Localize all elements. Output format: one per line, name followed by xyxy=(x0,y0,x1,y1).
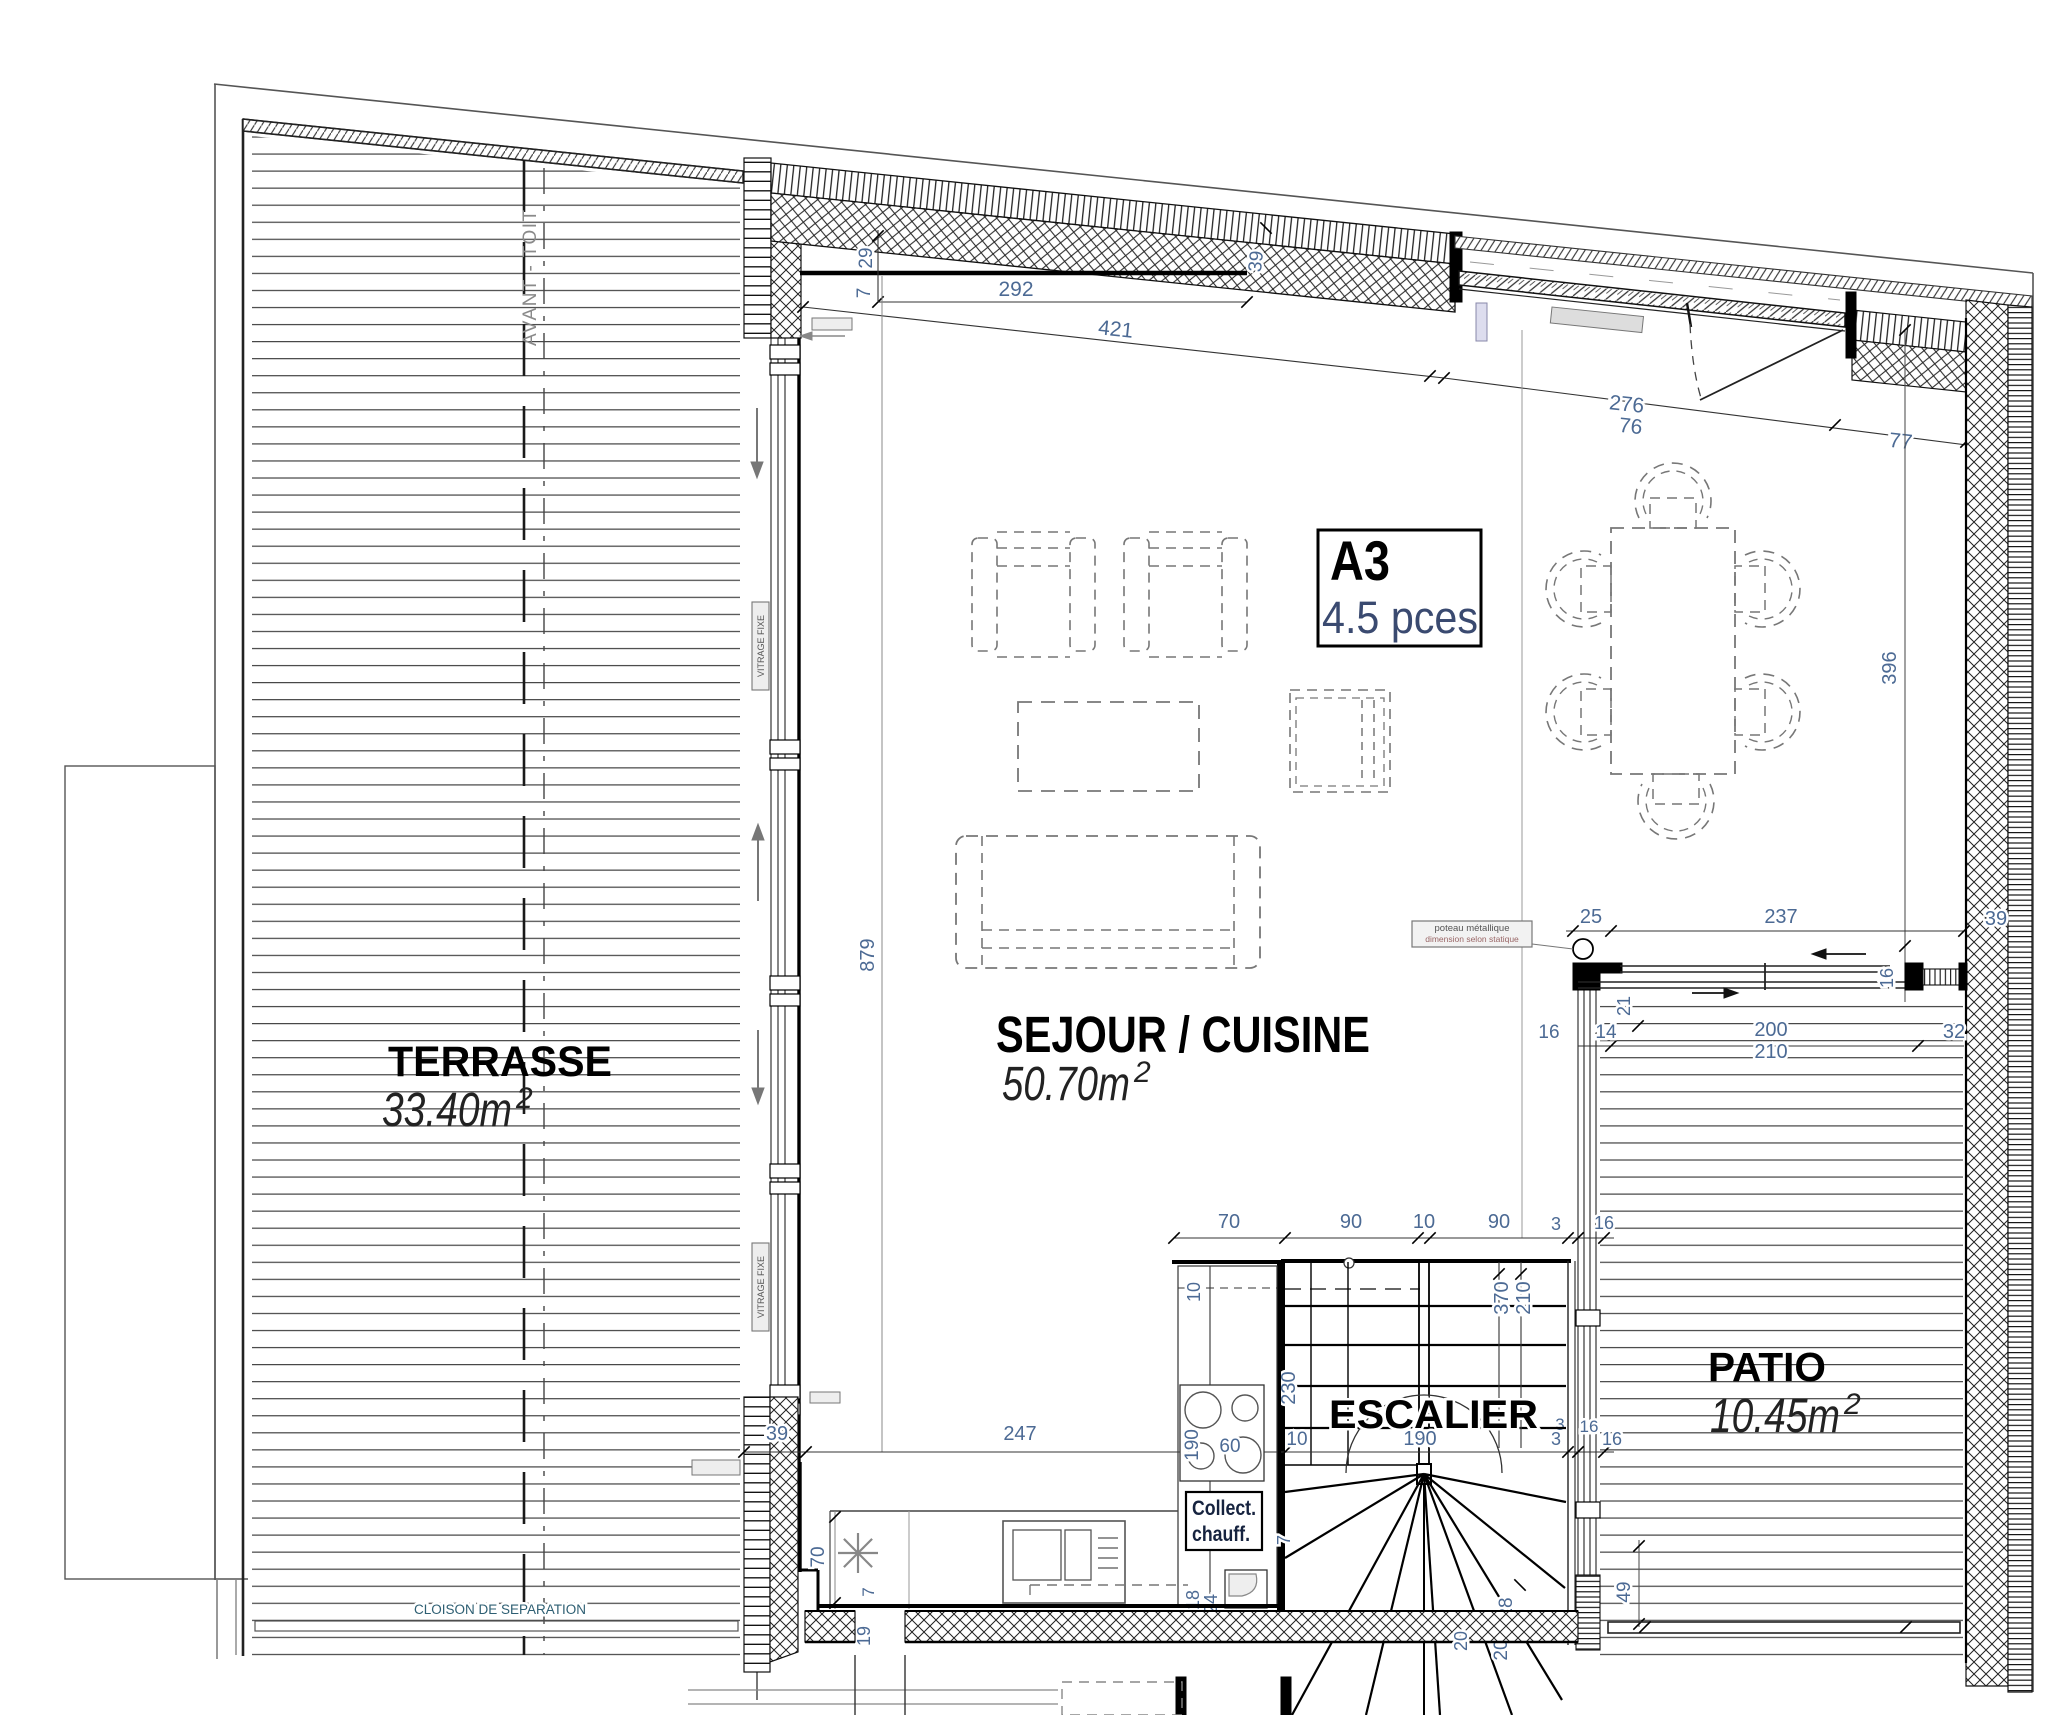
svg-text:16: 16 xyxy=(1538,1022,1559,1043)
svg-text:16: 16 xyxy=(1602,1429,1622,1449)
svg-text:421: 421 xyxy=(1097,316,1134,343)
svg-text:14: 14 xyxy=(1595,1022,1617,1043)
svg-text:10: 10 xyxy=(1184,1282,1204,1302)
svg-text:25: 25 xyxy=(1580,906,1602,928)
svg-text:50.70m: 50.70m xyxy=(1002,1058,1130,1111)
svg-text:10.45m: 10.45m xyxy=(1710,1390,1840,1443)
svg-text:190: 190 xyxy=(1403,1428,1436,1450)
svg-text:76: 76 xyxy=(1618,414,1644,439)
svg-text:2: 2 xyxy=(1843,1388,1861,1421)
svg-text:16: 16 xyxy=(1594,1213,1614,1233)
svg-text:PATIO: PATIO xyxy=(1708,1344,1826,1390)
svg-text:A3: A3 xyxy=(1330,529,1390,592)
svg-text:210: 210 xyxy=(1513,1281,1535,1314)
svg-text:292: 292 xyxy=(998,278,1033,301)
svg-text:230: 230 xyxy=(1278,1371,1300,1404)
svg-text:190: 190 xyxy=(1182,1429,1203,1461)
svg-text:poteau métallique: poteau métallique xyxy=(1435,923,1510,934)
svg-text:Collect.: Collect. xyxy=(1192,1497,1256,1520)
svg-text:70: 70 xyxy=(1218,1211,1240,1233)
svg-text:4.5 pces: 4.5 pces xyxy=(1322,592,1478,643)
svg-text:33.40m: 33.40m xyxy=(382,1084,512,1137)
svg-text:90: 90 xyxy=(1488,1211,1510,1233)
svg-text:879: 879 xyxy=(857,938,879,971)
svg-text:3: 3 xyxy=(1551,1429,1561,1449)
svg-text:3: 3 xyxy=(1551,1214,1561,1234)
svg-text:2: 2 xyxy=(515,1082,533,1115)
svg-text:21: 21 xyxy=(1614,996,1634,1016)
svg-text:10: 10 xyxy=(1413,1211,1435,1233)
svg-text:7: 7 xyxy=(854,288,875,299)
svg-text:39: 39 xyxy=(1245,250,1268,273)
svg-text:29: 29 xyxy=(856,247,877,268)
svg-text:19: 19 xyxy=(854,1626,874,1646)
svg-text:247: 247 xyxy=(1003,1423,1036,1445)
svg-text:77: 77 xyxy=(1888,429,1914,454)
svg-text:39: 39 xyxy=(1985,908,2007,930)
svg-text:237: 237 xyxy=(1764,906,1797,928)
svg-text:370: 370 xyxy=(1491,1281,1513,1314)
svg-text:10: 10 xyxy=(1286,1429,1307,1450)
svg-text:VITRAGE FIXE: VITRAGE FIXE xyxy=(756,1256,766,1318)
svg-text:dimension selon statique: dimension selon statique xyxy=(1425,934,1519,944)
svg-text:SEJOUR / CUISINE: SEJOUR / CUISINE xyxy=(996,1006,1370,1063)
svg-text:7: 7 xyxy=(1274,1535,1294,1545)
svg-text:7: 7 xyxy=(859,1587,878,1596)
svg-text:20: 20 xyxy=(1451,1631,1471,1651)
svg-text:70: 70 xyxy=(808,1546,829,1567)
svg-text:396: 396 xyxy=(1879,651,1901,684)
svg-text:AVANT - TOIT: AVANT - TOIT xyxy=(520,208,541,346)
svg-text:chauff.: chauff. xyxy=(1192,1523,1250,1546)
svg-text:VITRAGE FIXE: VITRAGE FIXE xyxy=(756,615,766,677)
svg-text:200: 200 xyxy=(1754,1019,1787,1041)
svg-text:16: 16 xyxy=(1580,1417,1599,1436)
svg-text:2: 2 xyxy=(1133,1056,1151,1089)
svg-text:210: 210 xyxy=(1754,1041,1787,1063)
svg-text:39: 39 xyxy=(766,1423,788,1445)
svg-text:60: 60 xyxy=(1219,1436,1240,1457)
svg-text:90: 90 xyxy=(1340,1211,1362,1233)
svg-text:49: 49 xyxy=(1614,1581,1635,1602)
svg-text:16: 16 xyxy=(1877,968,1897,988)
svg-text:CLOISON DE SEPARATION: CLOISON DE SEPARATION xyxy=(414,1602,586,1617)
svg-text:TERRASSE: TERRASSE xyxy=(388,1038,612,1086)
svg-text:32: 32 xyxy=(1943,1021,1965,1043)
